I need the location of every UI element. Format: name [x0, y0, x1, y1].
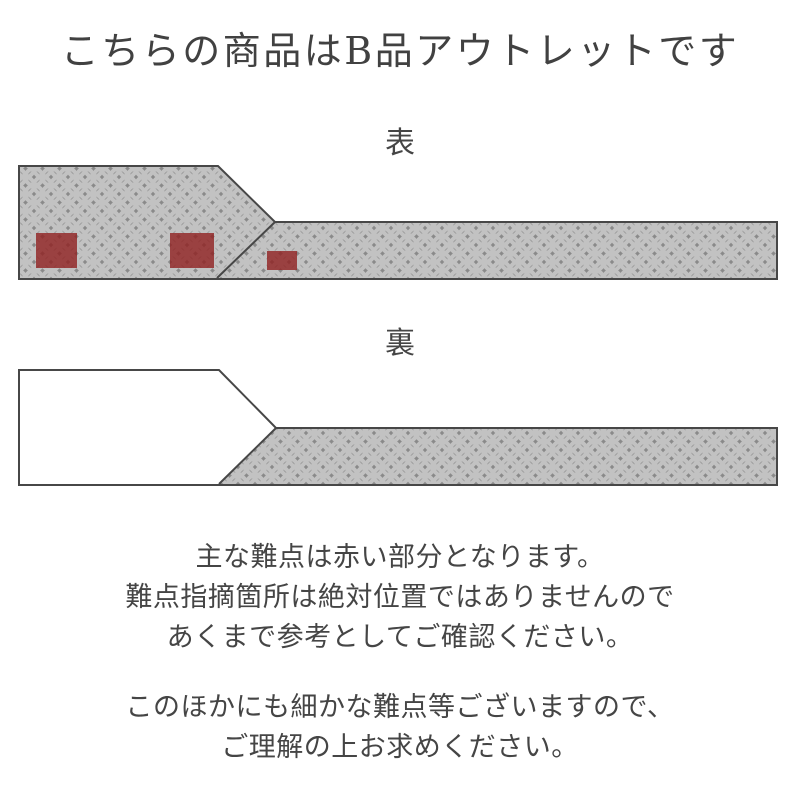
product-notice-image: こちらの商品はB品アウトレットです 表	[0, 0, 800, 800]
note-line: あくまで参考としてご確認ください。	[0, 618, 800, 658]
back-band	[219, 428, 777, 485]
back-side-label: 裏	[0, 318, 800, 362]
back-tie-diagram	[0, 365, 800, 490]
note-line: 難点指摘箇所は絶対位置ではありませんので	[0, 578, 800, 618]
note-line: 主な難点は赤い部分となります。	[0, 538, 800, 578]
defect-marker	[267, 251, 297, 270]
front-tie-shape	[19, 166, 777, 279]
page-title: こちらの商品はB品アウトレットです	[0, 20, 800, 75]
defect-explanation-text: 主な難点は赤い部分となります。 難点指摘箇所は絶対位置ではありませんので あくま…	[0, 538, 800, 658]
note-line: このほかにも細かな難点等ございますので、	[0, 688, 800, 728]
front-tie-diagram	[0, 160, 800, 285]
note-line: ご理解の上お求めください。	[0, 728, 800, 768]
defect-marker	[170, 233, 214, 268]
purchase-disclaimer-text: このほかにも細かな難点等ございますので、 ご理解の上お求めください。	[0, 688, 800, 768]
defect-marker	[36, 233, 77, 268]
front-side-label: 表	[0, 118, 800, 162]
